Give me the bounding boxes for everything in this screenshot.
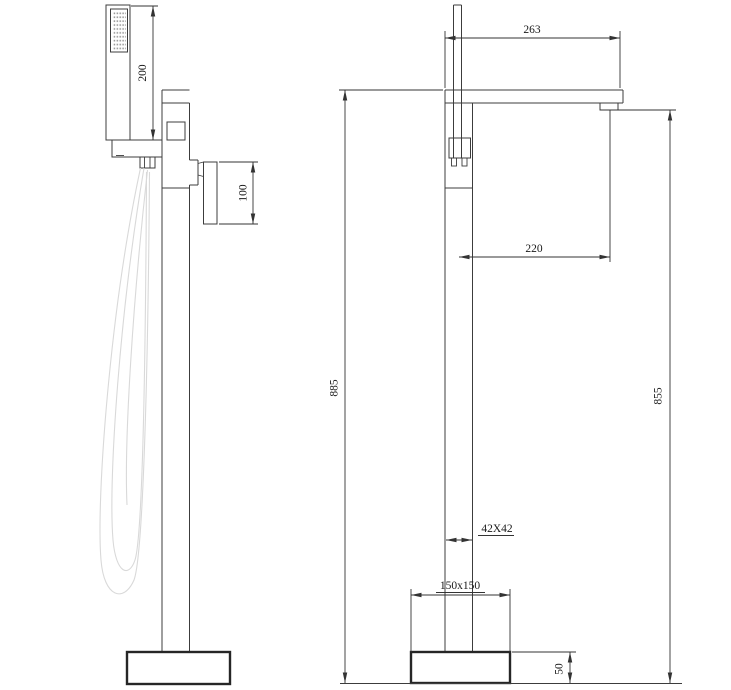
drawing-canvas: 200 100	[0, 0, 731, 690]
front-view: 263 220 885 855 42X42	[329, 5, 683, 684]
dim-200-label: 200	[137, 64, 149, 82]
handle-lever	[204, 162, 218, 224]
dimension-42x42: 42X42	[446, 523, 514, 540]
floor-base-front	[411, 652, 510, 683]
dimension-885: 885	[329, 90, 444, 683]
floor-base-side	[127, 652, 230, 684]
shower-holder-arm	[112, 140, 162, 157]
dim-263-label: 263	[523, 24, 541, 36]
dimension-100: 100	[219, 162, 258, 224]
dimension-200: 200	[131, 6, 158, 140]
dimension-855: 855	[600, 110, 676, 683]
hose-nut	[140, 157, 155, 168]
side-view: 200 100	[100, 5, 258, 684]
handle-neck-bottom	[198, 175, 204, 177]
faucet-technical-drawing: 200 100	[0, 0, 731, 690]
dim-885-label: 885	[329, 379, 341, 397]
handle-neck-top	[198, 162, 204, 164]
dimension-263: 263	[445, 24, 620, 88]
dim-50-label: 50	[554, 663, 566, 675]
dim-855-label: 855	[653, 387, 665, 405]
dimension-220: 220	[459, 110, 610, 262]
spout-nozzle	[600, 103, 618, 110]
dim-220-label: 220	[525, 243, 543, 255]
dim-150x150-label: 150x150	[440, 580, 481, 592]
holder-leg-left	[452, 158, 457, 166]
dim-100-label: 100	[238, 184, 250, 202]
spray-nozzle-dots	[113, 11, 127, 50]
dimension-50: 50	[512, 652, 576, 683]
holder-leg-right	[462, 158, 467, 166]
dimension-150x150: 150x150	[411, 580, 510, 652]
wand-holder-bracket	[449, 138, 471, 158]
shower-hose-outer	[100, 168, 149, 594]
dim-42x42-label: 42X42	[481, 523, 513, 535]
diverter-square-detail	[167, 122, 185, 140]
